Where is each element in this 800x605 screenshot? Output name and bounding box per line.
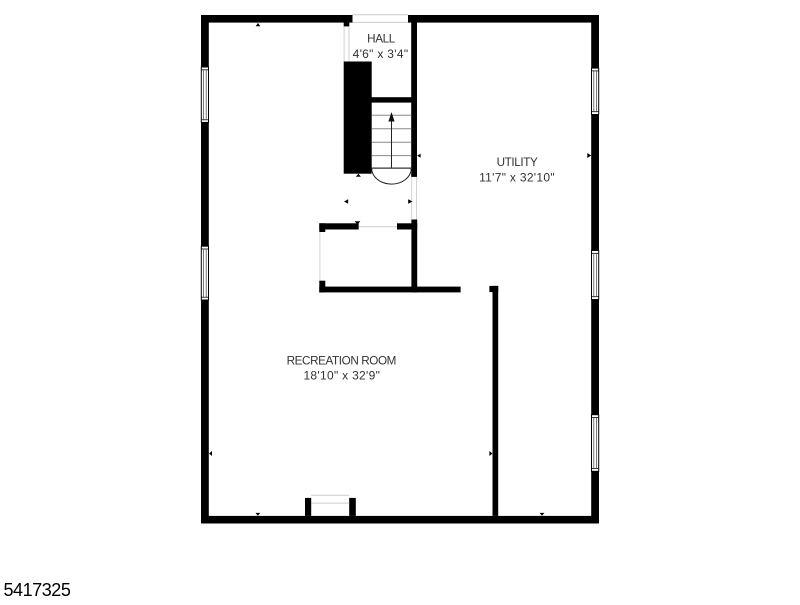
svg-text:RECREATION ROOM: RECREATION ROOM: [287, 355, 396, 368]
svg-text:4'6" x 3'4": 4'6" x 3'4": [353, 47, 409, 61]
svg-text:UTILITY: UTILITY: [497, 156, 538, 169]
svg-text:HALL: HALL: [367, 33, 396, 46]
svg-text:18'10" x 32'9": 18'10" x 32'9": [303, 368, 380, 382]
svg-text:11'7" x 32'10": 11'7" x 32'10": [479, 170, 555, 184]
svg-text:5417325: 5417325: [4, 580, 71, 600]
